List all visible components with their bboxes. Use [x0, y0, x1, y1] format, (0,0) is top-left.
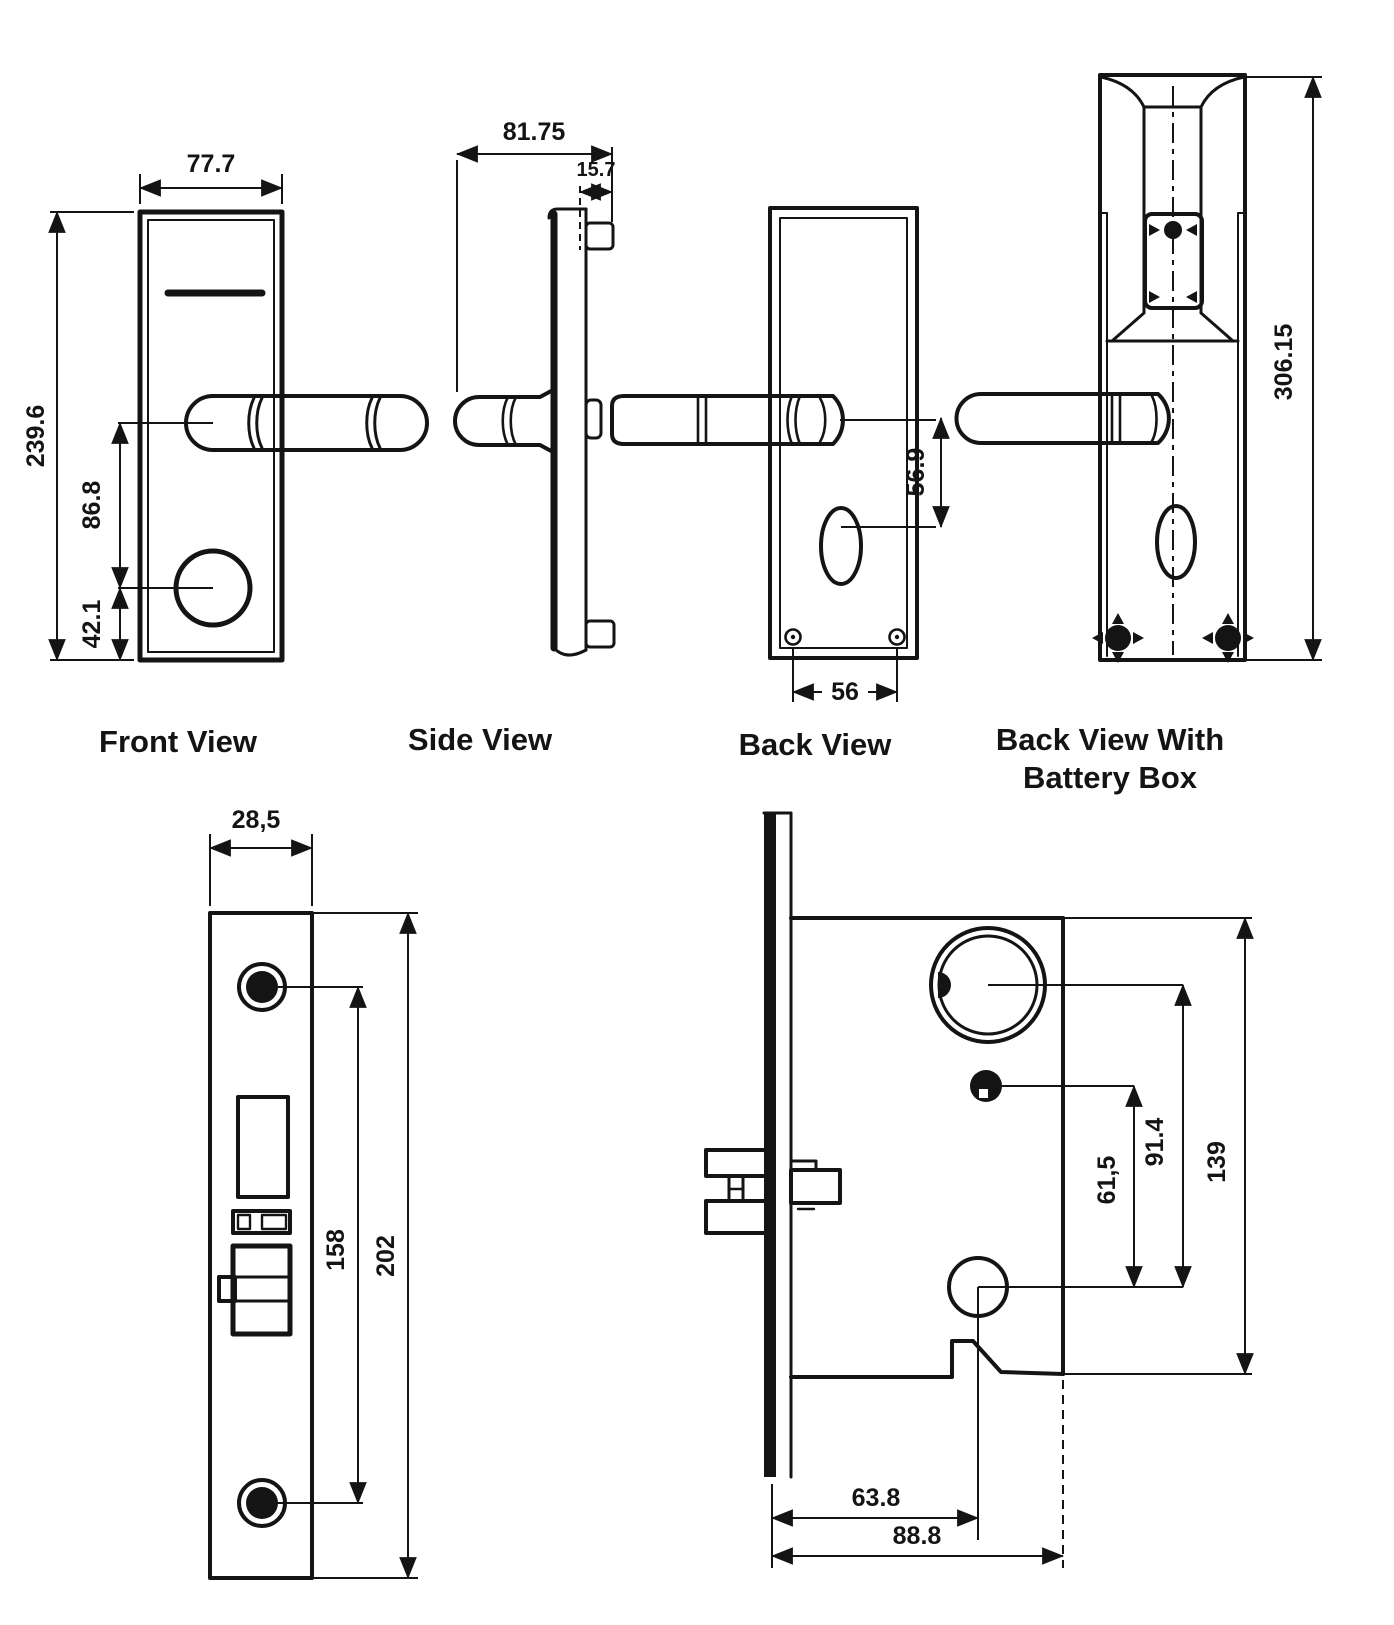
- front-handle-segments: [249, 398, 380, 448]
- dim-case-width: 88.8: [893, 1522, 942, 1550]
- dim-front-height: 239.6: [22, 405, 50, 468]
- dim-handle-to-knob: 86.8: [78, 481, 106, 530]
- side-view-label: Side View: [408, 722, 553, 757]
- back-view-label: Back View: [739, 727, 893, 762]
- dim-back-screw-span: 56: [831, 678, 859, 706]
- front-view-label: Front View: [99, 724, 258, 759]
- back-keyhole: [821, 508, 861, 584]
- dim-front-width: 77.7: [187, 150, 236, 178]
- dim-cyl-to-bolt: 91.4: [1141, 1118, 1169, 1167]
- dim-case-height: 139: [1203, 1141, 1231, 1183]
- dim-side-depth: 81.75: [503, 118, 566, 146]
- side-view: 81.75 15.7 Side View: [408, 118, 616, 757]
- door-lock-technical-drawing: 77.7 239.6 86.8 42.1 Front View 81.75 15…: [0, 0, 1394, 1625]
- dim-side-tab: 15.7: [577, 159, 616, 181]
- technical-drawing-page: 77.7 239.6 86.8 42.1 Front View 81.75 15…: [0, 0, 1394, 1625]
- front-plate-outline: [140, 212, 282, 660]
- back-view: 56 56.9 Back View: [612, 208, 941, 762]
- latch-opening: [238, 1097, 288, 1197]
- battery-view-label-line2: Battery Box: [1023, 760, 1198, 795]
- dim-faceplate-height: 202: [372, 1235, 400, 1277]
- front-view: 77.7 239.6 86.8 42.1 Front View: [22, 150, 427, 759]
- battery-handle: [957, 394, 1169, 443]
- dim-faceplate-width: 28,5: [232, 806, 281, 834]
- dim-handle-to-keyhole: 56.9: [902, 448, 930, 497]
- battery-box-view: 306.15 Back View With Battery Box: [957, 75, 1323, 795]
- battery-handle-segments: [1112, 394, 1157, 443]
- faceplate-view: 28,5 158 202: [210, 806, 418, 1578]
- deadbolt-opening: [219, 1246, 290, 1334]
- battery-view-label-line1: Back View With: [996, 722, 1224, 757]
- dim-pin-to-bolt: 61,5: [1093, 1156, 1121, 1205]
- battery-keyhole: [1157, 506, 1195, 578]
- lockbody-faceplate-edge: [764, 813, 776, 1477]
- side-bottom-tab: [586, 621, 614, 647]
- lockbody-bottom-edge: [791, 1341, 1063, 1377]
- side-handle-segments: [503, 397, 516, 445]
- back-plate-outline: [770, 208, 917, 658]
- dim-knob-to-bottom: 42.1: [78, 600, 106, 649]
- front-handle: [186, 396, 427, 450]
- lock-body-view: 61,5 91.4 139 63.8 88.8: [706, 813, 1252, 1568]
- spindle-pin: [970, 1070, 1002, 1102]
- side-top-tab: [586, 223, 613, 249]
- back-handle-segments: [698, 396, 825, 444]
- dim-backset: 63.8: [852, 1484, 901, 1512]
- side-spindle-tab: [586, 400, 601, 438]
- dim-battery-height: 306.15: [1270, 324, 1298, 401]
- dim-faceplate-screws: 158: [322, 1229, 350, 1271]
- back-handle: [612, 396, 843, 444]
